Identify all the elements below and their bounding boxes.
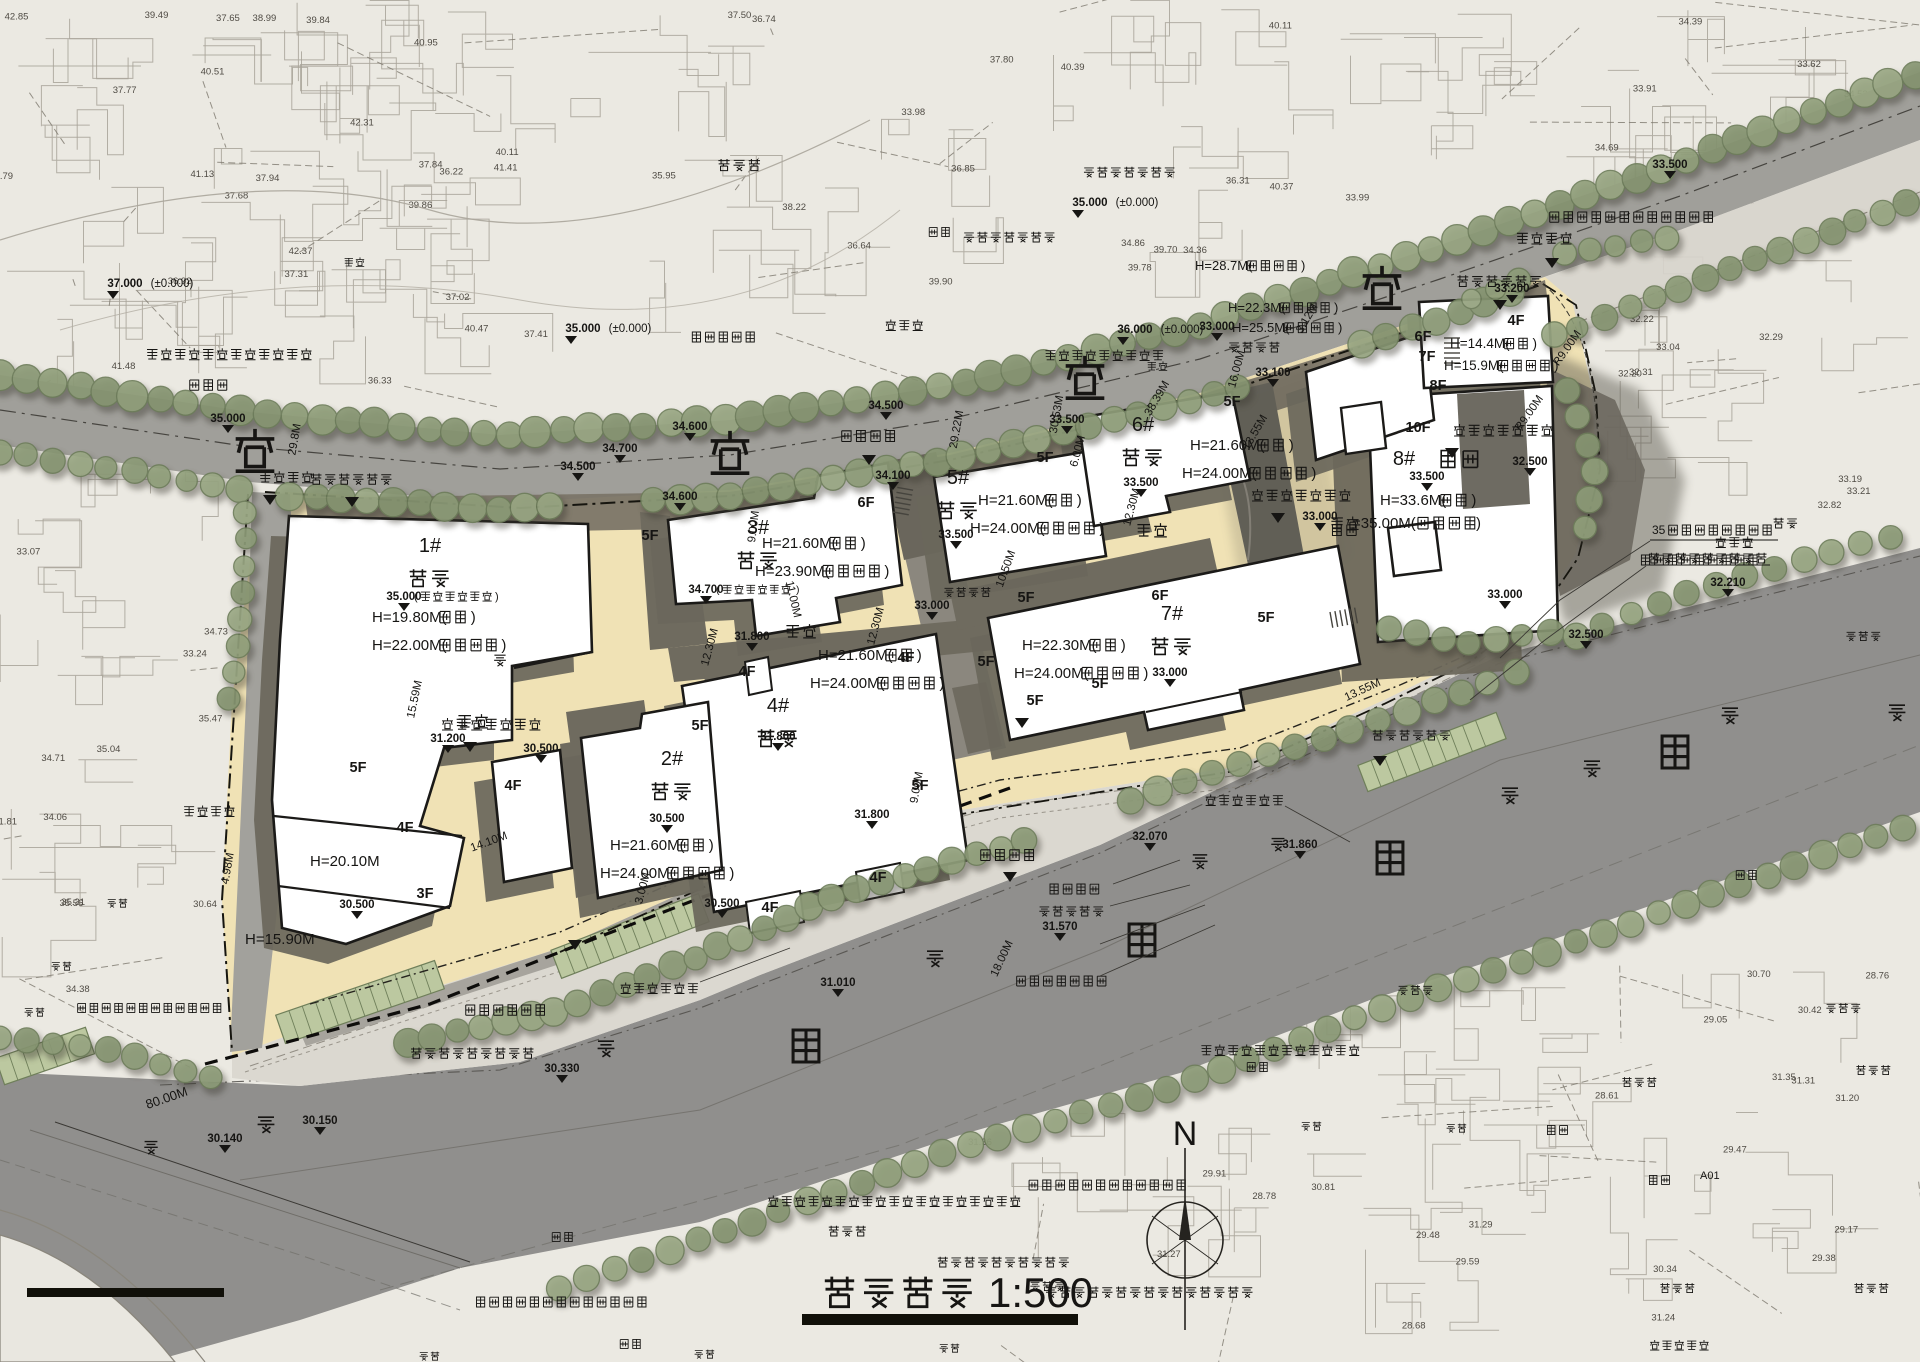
svg-text:36.22: 36.22 [439, 166, 463, 177]
svg-text:A01: A01 [1700, 1170, 1720, 1182]
svg-text:31.27: 31.27 [1157, 1249, 1181, 1260]
svg-text:H=23.90M(: H=23.90M( [755, 563, 830, 580]
svg-text:39.90: 39.90 [929, 276, 953, 287]
svg-text:28.76: 28.76 [1865, 971, 1889, 982]
svg-text:35.000: 35.000 [565, 323, 600, 335]
svg-text:33.500: 33.500 [938, 529, 973, 541]
svg-text:5F: 5F [1037, 450, 1054, 466]
svg-text:35.56: 35.56 [59, 898, 83, 909]
svg-text:35: 35 [1652, 523, 1666, 537]
svg-text:29.91: 29.91 [1202, 1169, 1226, 1180]
svg-text:34.73: 34.73 [204, 627, 228, 638]
svg-text:35.04: 35.04 [97, 744, 121, 755]
svg-text:(±0.000): (±0.000) [151, 278, 194, 290]
svg-text:35.47: 35.47 [199, 713, 223, 724]
svg-text:33.500: 33.500 [1409, 471, 1444, 483]
svg-text:32.500: 32.500 [1512, 456, 1547, 468]
svg-text:H=28.7M(: H=28.7M( [1195, 258, 1253, 273]
svg-text:5F: 5F [1258, 610, 1275, 626]
svg-text:H=24.00M(: H=24.00M( [1182, 465, 1257, 482]
svg-text:5F: 5F [1018, 590, 1035, 606]
svg-text:34.500: 34.500 [560, 461, 595, 473]
svg-text:34.38: 34.38 [66, 984, 90, 995]
svg-text:(: ( [414, 591, 418, 603]
svg-text:31.010: 31.010 [820, 977, 855, 989]
svg-text:H=24.00M(: H=24.00M( [810, 675, 885, 692]
svg-text:33.000: 33.000 [914, 600, 949, 612]
svg-text:5F: 5F [1092, 676, 1109, 692]
svg-text:29.47: 29.47 [1723, 1145, 1747, 1156]
svg-text:32.20: 32.20 [1618, 368, 1642, 379]
svg-text:41.13: 41.13 [190, 169, 214, 180]
svg-text:34.71: 34.71 [41, 753, 65, 764]
svg-text:H=24.00M(: H=24.00M( [600, 865, 675, 882]
svg-text:36.85: 36.85 [951, 164, 975, 175]
svg-text:5F: 5F [1027, 693, 1044, 709]
svg-text:8#: 8# [1393, 448, 1416, 470]
svg-text:4F: 4F [505, 778, 522, 794]
svg-text:H=15.90M: H=15.90M [245, 931, 315, 948]
svg-text:42.37: 42.37 [289, 246, 313, 257]
svg-text:32.070: 32.070 [1132, 831, 1167, 843]
svg-text:40.11: 40.11 [1269, 21, 1292, 32]
svg-text:33.99: 33.99 [1345, 192, 1369, 203]
svg-text:36.000: 36.000 [1117, 324, 1152, 336]
svg-text:H=24.00M(: H=24.00M( [970, 520, 1045, 537]
svg-text:): ) [1338, 320, 1342, 335]
svg-text:41.79: 41.79 [0, 171, 13, 182]
svg-text:): ) [501, 637, 506, 654]
svg-text:40.11: 40.11 [496, 147, 519, 158]
svg-text:5F: 5F [978, 654, 995, 670]
svg-text:31.800: 31.800 [854, 809, 889, 821]
svg-text:30.150: 30.150 [302, 1115, 337, 1127]
svg-text:37.02: 37.02 [446, 292, 470, 303]
svg-text:4F: 4F [762, 900, 779, 916]
svg-text:): ) [729, 865, 734, 882]
svg-text:37.41: 37.41 [524, 329, 548, 340]
svg-text:H=21.60M(: H=21.60M( [762, 535, 837, 552]
svg-text:): ) [1471, 492, 1476, 509]
svg-text:34.69: 34.69 [1595, 143, 1619, 154]
svg-text:37.50: 37.50 [728, 10, 752, 21]
svg-text:): ) [1121, 637, 1126, 654]
svg-text:37.000: 37.000 [107, 278, 142, 290]
svg-text:29.17: 29.17 [1834, 1224, 1858, 1235]
svg-text:36.74: 36.74 [752, 14, 776, 25]
svg-text:33.07: 33.07 [17, 546, 41, 557]
svg-text:): ) [1334, 300, 1338, 315]
svg-text:H=21.60M(: H=21.60M( [610, 837, 685, 854]
svg-text:2#: 2# [661, 748, 684, 770]
svg-text:29.38: 29.38 [1812, 1253, 1836, 1264]
svg-text:35.000: 35.000 [210, 413, 245, 425]
svg-text:H=15.9M(: H=15.9M( [1444, 358, 1504, 373]
svg-text:34.700: 34.700 [602, 443, 637, 455]
svg-text:37.77: 37.77 [113, 85, 137, 96]
svg-text:1:500: 1:500 [988, 1269, 1093, 1316]
svg-text:): ) [1289, 437, 1294, 454]
svg-text:38.22: 38.22 [782, 202, 806, 213]
svg-text:40.39: 40.39 [1061, 62, 1085, 73]
svg-text:H=22.30M(: H=22.30M( [1022, 637, 1097, 654]
svg-text:34.06: 34.06 [43, 812, 67, 823]
svg-text:30.500: 30.500 [339, 899, 374, 911]
svg-text:7F: 7F [1419, 349, 1436, 365]
svg-text:): ) [1077, 492, 1082, 509]
svg-text:42.31: 42.31 [350, 117, 374, 128]
svg-text:H=24.00M(: H=24.00M( [1014, 665, 1089, 682]
svg-text:3F: 3F [417, 886, 434, 902]
svg-text:36.33: 36.33 [368, 376, 392, 387]
svg-text:): ) [1099, 520, 1104, 537]
svg-text:32.82: 32.82 [1818, 500, 1842, 511]
svg-text:33.200: 33.200 [1494, 283, 1529, 295]
svg-text:(±0.000): (±0.000) [1161, 324, 1204, 336]
svg-text:): ) [939, 675, 944, 692]
svg-text:30.500: 30.500 [523, 743, 558, 755]
svg-text:(±0.000): (±0.000) [1116, 197, 1159, 209]
svg-text:33.91: 33.91 [1633, 83, 1657, 94]
svg-text:31.200: 31.200 [430, 733, 465, 745]
svg-text:32.210: 32.210 [1710, 577, 1745, 589]
svg-text:37.84: 37.84 [419, 159, 443, 170]
svg-text:H=22.3M(: H=22.3M( [1228, 300, 1286, 315]
svg-text:4F: 4F [739, 664, 756, 680]
svg-text:37.80: 37.80 [990, 54, 1014, 65]
svg-text:7#: 7# [1161, 603, 1184, 625]
svg-text:31.81: 31.81 [0, 816, 17, 827]
svg-text:37.31: 37.31 [284, 269, 308, 280]
svg-text:(: ( [716, 584, 720, 596]
svg-text:H=25.5M(: H=25.5M( [1232, 320, 1290, 335]
svg-text:38.99: 38.99 [253, 13, 277, 24]
svg-text:6F: 6F [1152, 588, 1169, 604]
svg-text:40.47: 40.47 [465, 324, 489, 335]
svg-text:8F: 8F [1430, 378, 1447, 394]
svg-text:36.31: 36.31 [1226, 175, 1250, 186]
svg-text:31.800: 31.800 [734, 631, 769, 643]
svg-text:31.20: 31.20 [1835, 1093, 1859, 1104]
svg-text:34.100: 34.100 [875, 470, 910, 482]
svg-text:28.61: 28.61 [1595, 1090, 1619, 1101]
svg-text:H=19.80M(: H=19.80M( [372, 609, 447, 626]
svg-text:30.70: 30.70 [1747, 969, 1771, 980]
svg-text:35.95: 35.95 [652, 170, 676, 181]
svg-text:4#: 4# [767, 695, 790, 717]
svg-text:30.500: 30.500 [704, 898, 739, 910]
svg-text:): ) [884, 563, 889, 580]
svg-text:31.24: 31.24 [1651, 1312, 1675, 1323]
svg-text:33.62: 33.62 [1797, 59, 1821, 70]
svg-text:30.42: 30.42 [1798, 1005, 1822, 1016]
svg-text:5F: 5F [1224, 394, 1241, 410]
svg-text:H=20.10M: H=20.10M [310, 853, 380, 870]
svg-text:31.800: 31.800 [760, 731, 795, 743]
svg-text:1#: 1# [419, 535, 442, 557]
svg-text:32.500: 32.500 [1568, 629, 1603, 641]
svg-text:29.59: 29.59 [1456, 1257, 1480, 1268]
svg-text:40.37: 40.37 [1270, 182, 1294, 193]
svg-text:30.34: 30.34 [1653, 1264, 1677, 1275]
svg-text:H=33.6M(: H=33.6M( [1380, 492, 1446, 509]
svg-text:30.140: 30.140 [207, 1133, 242, 1145]
svg-text:(±0.000): (±0.000) [609, 323, 652, 335]
svg-text:33.04: 33.04 [1656, 342, 1680, 353]
svg-text:33.98: 33.98 [901, 107, 925, 118]
svg-text:33.19: 33.19 [1838, 474, 1862, 485]
svg-text:H=14.4M(: H=14.4M( [1450, 336, 1510, 351]
svg-text:): ) [917, 647, 922, 664]
svg-text:39.78: 39.78 [1128, 263, 1152, 274]
svg-text:33.000: 33.000 [1487, 589, 1522, 601]
svg-text:39.84: 39.84 [306, 15, 330, 26]
svg-text:42.85: 42.85 [5, 12, 29, 23]
svg-text:H=21.60M(: H=21.60M( [818, 647, 893, 664]
svg-text:5#: 5# [947, 467, 970, 489]
svg-text:): ) [861, 535, 866, 552]
svg-text:): ) [1311, 465, 1316, 482]
svg-text:30.81: 30.81 [1311, 1182, 1335, 1193]
svg-text:33.100: 33.100 [1255, 367, 1290, 379]
svg-text:33.500: 33.500 [1123, 477, 1158, 489]
svg-text:=35.00M(: =35.00M( [1352, 515, 1416, 532]
svg-text:34.36: 34.36 [1183, 245, 1207, 256]
svg-text:30.330: 30.330 [544, 1063, 579, 1075]
svg-text:31.570: 31.570 [1042, 921, 1077, 933]
svg-text:34.600: 34.600 [672, 421, 707, 433]
svg-text:40.95: 40.95 [414, 38, 438, 49]
svg-text:6F: 6F [858, 495, 875, 511]
svg-text:): ) [495, 591, 499, 603]
svg-text:): ) [1301, 258, 1305, 273]
svg-text:33.500: 33.500 [1652, 159, 1687, 171]
svg-text:4F: 4F [397, 820, 414, 836]
svg-text:6F: 6F [1415, 329, 1432, 345]
svg-text:28.78: 28.78 [1252, 1191, 1276, 1202]
svg-text:): ) [1532, 336, 1537, 351]
svg-text:): ) [471, 609, 476, 626]
svg-text:10F: 10F [1406, 420, 1431, 436]
svg-text:H=22.00M(: H=22.00M( [372, 637, 447, 654]
svg-text:30.64: 30.64 [193, 899, 217, 910]
svg-text:33.21: 33.21 [1847, 486, 1871, 497]
svg-text:29.48: 29.48 [1416, 1230, 1440, 1241]
svg-text:40.51: 40.51 [201, 67, 225, 78]
svg-text:): ) [709, 837, 714, 854]
svg-text:N: N [1173, 1115, 1198, 1153]
svg-text:5F: 5F [692, 718, 709, 734]
svg-text:34.39: 34.39 [1679, 16, 1703, 27]
svg-text:33.000: 33.000 [1199, 321, 1234, 333]
svg-text:39.49: 39.49 [145, 10, 169, 21]
svg-text:29.05: 29.05 [1704, 1015, 1728, 1026]
svg-text:28.68: 28.68 [1402, 1320, 1426, 1331]
svg-text:34.600: 34.600 [662, 491, 697, 503]
svg-text:35.000: 35.000 [1072, 197, 1107, 209]
svg-text:31.860: 31.860 [1282, 839, 1317, 851]
svg-text:H=21.60M(: H=21.60M( [978, 492, 1053, 509]
svg-text:31.31: 31.31 [1791, 1076, 1815, 1087]
svg-text:): ) [1143, 665, 1148, 682]
svg-text:37.94: 37.94 [256, 173, 280, 184]
svg-text:5F: 5F [350, 760, 367, 776]
svg-text:33.24: 33.24 [183, 648, 207, 659]
svg-text:4F: 4F [870, 870, 887, 886]
svg-text:33.000: 33.000 [1152, 667, 1187, 679]
svg-text:37.65: 37.65 [216, 13, 240, 24]
svg-text:41.41: 41.41 [494, 162, 518, 173]
svg-text:4F: 4F [898, 650, 915, 666]
svg-text:30.500: 30.500 [649, 813, 684, 825]
svg-text:4F: 4F [1508, 313, 1525, 329]
svg-text:5F: 5F [642, 528, 659, 544]
svg-text:41.48: 41.48 [112, 361, 136, 372]
svg-text:): ) [1476, 515, 1481, 532]
svg-text:32.29: 32.29 [1759, 332, 1783, 343]
svg-text:34.86: 34.86 [1121, 238, 1145, 249]
svg-text:31.29: 31.29 [1469, 1220, 1493, 1231]
svg-text:39.70: 39.70 [1154, 244, 1178, 255]
svg-text:36.64: 36.64 [847, 241, 871, 252]
svg-text:34.500: 34.500 [868, 400, 903, 412]
